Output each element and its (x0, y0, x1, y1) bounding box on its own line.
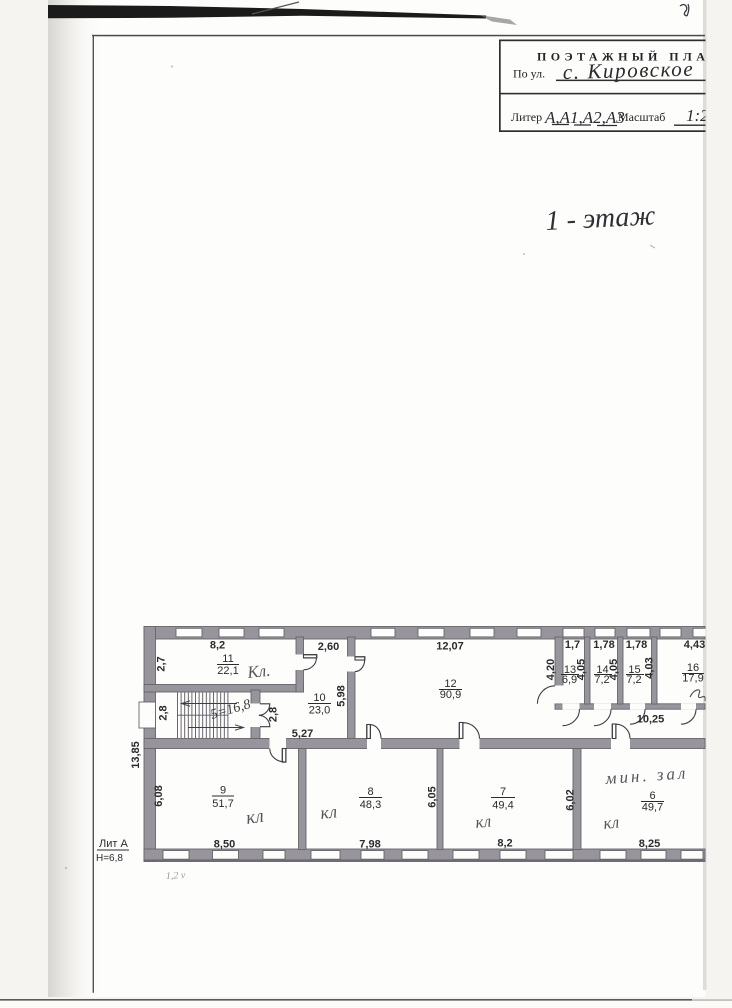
svg-text:Лит А: Лит А (99, 838, 128, 850)
svg-text:1,7: 1,7 (565, 639, 580, 651)
svg-text:6,02: 6,02 (565, 789, 577, 810)
svg-text:7,98: 7,98 (359, 839, 380, 851)
svg-text:13,85: 13,85 (130, 741, 142, 769)
svg-text:4,20: 4,20 (545, 659, 557, 680)
svg-text:51,7: 51,7 (212, 798, 233, 810)
svg-text:Н=6,8: Н=6,8 (96, 853, 123, 864)
svg-text:7,2: 7,2 (626, 674, 641, 686)
svg-text:6,08: 6,08 (153, 785, 165, 806)
svg-text:Кл.: Кл. (245, 661, 271, 682)
svg-text:90,9: 90,9 (440, 689, 461, 701)
svg-text:8,25: 8,25 (639, 838, 660, 850)
svg-text:6,05: 6,05 (427, 786, 439, 807)
svg-text:9: 9 (220, 785, 226, 797)
svg-text:10,25: 10,25 (637, 714, 665, 726)
svg-text:7: 7 (500, 786, 506, 798)
svg-text:2,8: 2,8 (158, 705, 170, 720)
svg-text:4,05: 4,05 (608, 659, 620, 680)
svg-text:2,60: 2,60 (318, 641, 339, 653)
svg-text:6: 6 (649, 790, 655, 802)
svg-text:12,07: 12,07 (436, 641, 464, 653)
svg-text:Масштаб: Масштаб (618, 110, 665, 124)
svg-text:22,1: 22,1 (217, 665, 238, 677)
svg-text:кл: кл (245, 806, 265, 829)
svg-text:49,7: 49,7 (642, 802, 663, 814)
svg-text:4,43: 4,43 (684, 639, 705, 651)
svg-text:По ул.: По ул. (513, 67, 545, 81)
svg-text:кл: кл (602, 812, 620, 833)
svg-text:2,7: 2,7 (156, 656, 168, 671)
svg-text:8,2: 8,2 (210, 640, 225, 652)
svg-text:1,78: 1,78 (626, 639, 647, 651)
svg-text:48,3: 48,3 (360, 799, 381, 811)
svg-text:10: 10 (313, 692, 325, 704)
svg-text:кл: кл (319, 801, 338, 823)
svg-text:7,2: 7,2 (594, 674, 609, 686)
svg-text:1 - этаж: 1 - этаж (545, 200, 656, 237)
svg-text:5,27: 5,27 (292, 728, 313, 740)
svg-text:Литер: Литер (511, 110, 542, 124)
svg-text:1,2 v: 1,2 v (166, 870, 187, 882)
svg-text:17,9: 17,9 (682, 673, 703, 685)
svg-text:1,78: 1,78 (593, 639, 614, 651)
svg-text:23,0: 23,0 (309, 705, 330, 717)
svg-text:8,2: 8,2 (497, 838, 512, 850)
svg-text:4,05: 4,05 (576, 659, 588, 680)
svg-text:8: 8 (367, 786, 373, 798)
svg-text:4,03: 4,03 (644, 657, 656, 678)
svg-text:6,9: 6,9 (562, 674, 577, 686)
svg-text:11: 11 (222, 653, 233, 665)
svg-text:49,4: 49,4 (492, 800, 513, 812)
svg-text:5,98: 5,98 (336, 685, 348, 706)
svg-text:8,50: 8,50 (214, 839, 235, 851)
svg-text:2,8: 2,8 (268, 707, 280, 722)
svg-text:кл: кл (474, 811, 492, 832)
